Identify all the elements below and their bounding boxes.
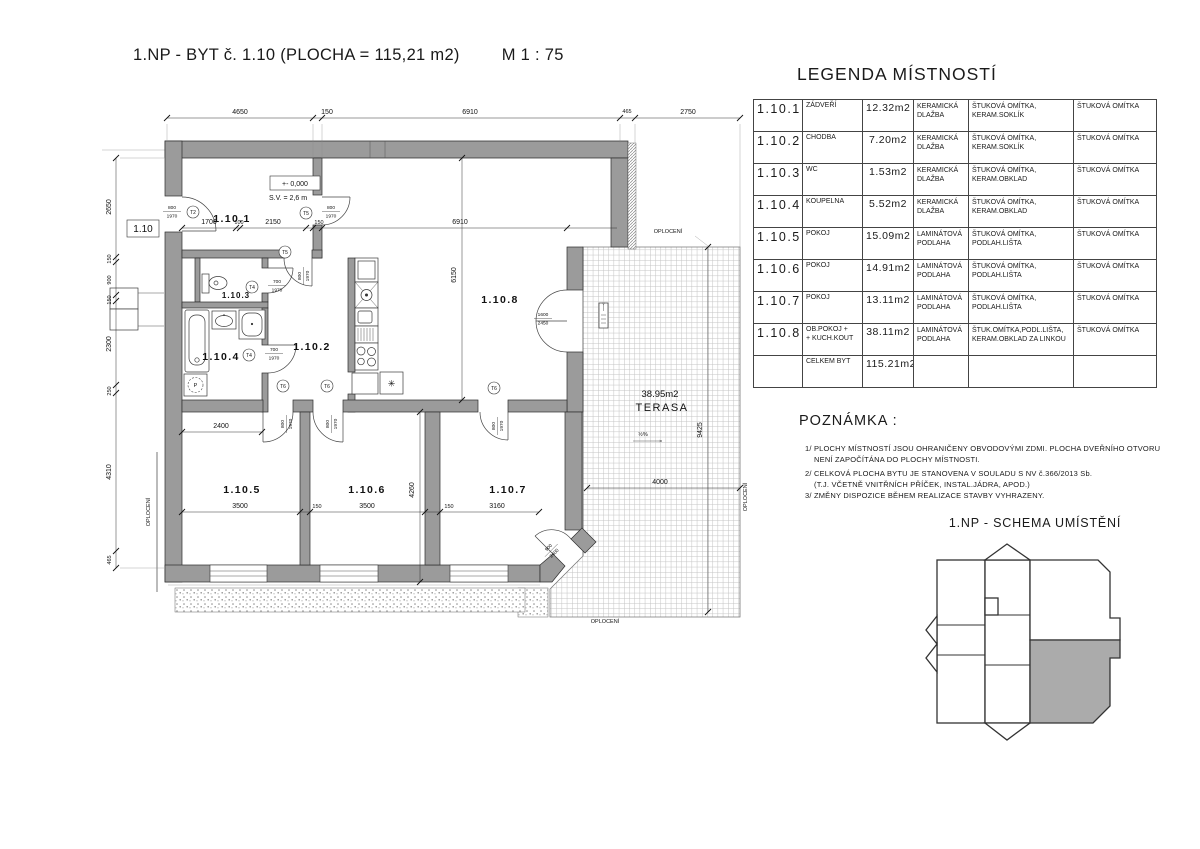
svg-text:2150: 2150 (265, 219, 281, 226)
svg-text:1970: 1970 (499, 420, 505, 431)
svg-text:4000: 4000 (652, 479, 668, 486)
room-label-1-10-1: 1.10.1 (213, 213, 251, 225)
svg-text:800: 800 (325, 420, 331, 428)
table-row: 1.10.3 WC 1.53m2 KERAMICKÁDLAŽBA ŠTUKOVÁ… (754, 164, 1157, 196)
table-row-total: CELKEM BYT 115.21m2 (754, 356, 1157, 388)
shaft-boxes (110, 288, 164, 330)
legend-title: LEGENDA MÍSTNOSTÍ (797, 64, 997, 85)
page-title: 1.NP - BYT č. 1.10 (PLOCHA = 115,21 m2) (133, 46, 460, 65)
note-line: 3/ ZMĚNY DISPOZICE BĚHEM REALIZACE STAVB… (805, 490, 1160, 501)
building-outline (926, 544, 1120, 740)
floor-plan: P ✳ (95, 90, 765, 650)
svg-text:800: 800 (327, 205, 335, 211)
drawing-sheet: 1.NP - BYT č. 1.10 (PLOCHA = 115,21 m2) … (0, 0, 1200, 849)
door-tag-t5: T5 (282, 250, 288, 256)
svg-text:2400: 2400 (213, 423, 229, 430)
terrace-name: TERASA (635, 402, 688, 414)
svg-text:2300: 2300 (106, 336, 113, 352)
ceiling-height: S.V. = 2,6 m (269, 195, 307, 202)
table-row: 1.10.8 OB.POKOJ ++ KUCH.KOUT 38.11m2 LAM… (754, 324, 1157, 356)
boiler: ✳ (380, 372, 403, 394)
table-row: 1.10.2 CHODBA 7.20m2 KERAMICKÁDLAŽBA ŠTU… (754, 132, 1157, 164)
svg-text:6150: 6150 (451, 267, 458, 283)
svg-text:1970: 1970 (326, 214, 337, 220)
highlighted-unit (1030, 640, 1120, 723)
svg-text:800: 800 (297, 272, 303, 280)
fence-label-right: OPLOCENÍ (742, 482, 749, 511)
svg-text:6910: 6910 (462, 109, 478, 116)
svg-text:1970: 1970 (272, 288, 283, 294)
door-tag-t6: T6 (491, 386, 497, 392)
washing-machine: P (184, 374, 207, 396)
table-row: 1.10.5 POKOJ 15.09m2 LAMINÁTOVÁPODLAHA Š… (754, 228, 1157, 260)
fence-label-top: OPLOCENÍ (654, 228, 683, 235)
svg-text:1970: 1970 (167, 214, 178, 220)
table-row: 1.10.1 ZÁDVEŘÍ 12.32m2 KERAMICKÁDLAŽBA Š… (754, 100, 1157, 132)
svg-text:2450: 2450 (538, 321, 549, 327)
table-row: 1.10.6 POKOJ 14.91m2 LAMINÁTOVÁPODLAHA Š… (754, 260, 1157, 292)
schema-title: 1.NP - SCHEMA UMÍSTĚNÍ (920, 516, 1150, 530)
note-line: 1/ PLOCHY MÍSTNOSTÍ JSOU OHRANIČENY OBVO… (805, 443, 1160, 454)
room-label-1-10-6: 1.10.6 (348, 484, 386, 496)
svg-text:465: 465 (107, 555, 113, 564)
svg-text:3500: 3500 (232, 503, 248, 510)
svg-text:150: 150 (314, 220, 323, 226)
level-mark: +- 0,000 (282, 181, 308, 188)
fence-label-bottom: OPLOCENÍ (591, 618, 620, 625)
closet (352, 373, 378, 394)
note-line: (T.J. VČETNĚ VNITŘNÍCH PŘÍČEK, INSTAL.JÁ… (805, 479, 1160, 490)
room-label-1-10-7: 1.10.7 (489, 484, 527, 496)
svg-text:1970: 1970 (333, 418, 339, 429)
svg-text:2650: 2650 (106, 199, 113, 215)
notes-title: POZNÁMKA : (799, 413, 898, 429)
svg-text:150: 150 (107, 254, 113, 263)
room-label-1-10-4: 1.10.4 (202, 351, 240, 363)
location-schema (918, 535, 1150, 750)
svg-text:150: 150 (107, 295, 113, 304)
terrace-level-marker (599, 303, 608, 328)
room-label-1-10-2: 1.10.2 (293, 341, 331, 353)
svg-text:700: 700 (270, 347, 278, 353)
door-tag-t6: T6 (324, 384, 330, 390)
room-label-1-10-5: 1.10.5 (223, 484, 261, 496)
note-line: 2/ CELKOVÁ PLOCHA BYTU JE STANOVENA V SO… (805, 468, 1160, 479)
svg-text:1970: 1970 (269, 356, 280, 362)
notes-block: 1/ PLOCHY MÍSTNOSTÍ JSOU OHRANIČENY OBVO… (805, 443, 1160, 501)
apartment-tag: 1.10 (133, 224, 153, 235)
fence-label-left: OPLOCENÍ (145, 497, 152, 526)
door-tag-t6: T6 (280, 384, 286, 390)
svg-text:150: 150 (444, 504, 453, 510)
washer-label: P (194, 383, 198, 389)
terrace-area: 38.95m2 (642, 389, 679, 400)
svg-text:150: 150 (312, 504, 321, 510)
svg-text:4260: 4260 (409, 482, 416, 498)
sheet-header: 1.NP - BYT č. 1.10 (PLOCHA = 115,21 m2) … (133, 46, 564, 65)
svg-text:465: 465 (622, 109, 631, 115)
svg-text:900: 900 (107, 275, 113, 284)
windows (210, 565, 508, 582)
insulation-strip (628, 143, 636, 249)
svg-text:3160: 3160 (489, 503, 505, 510)
svg-text:9425: 9425 (697, 422, 704, 438)
svg-text:1970: 1970 (288, 418, 294, 429)
svg-text:4650: 4650 (232, 109, 248, 116)
svg-text:4310: 4310 (106, 464, 113, 480)
svg-text:2750: 2750 (680, 109, 696, 116)
washbasin (212, 311, 236, 329)
svg-text:3500: 3500 (359, 503, 375, 510)
table-row: 1.10.4 KOUPELNA 5.52m2 KERAMICKÁDLAŽBA Š… (754, 196, 1157, 228)
door-tag-t2: T2 (190, 210, 196, 216)
door-tag-t4: T4 (246, 353, 252, 359)
legend-table: 1.10.1 ZÁDVEŘÍ 12.32m2 KERAMICKÁDLAŽBA Š… (753, 99, 1157, 388)
terrace-slope: ½% (638, 431, 648, 438)
svg-text:6910: 6910 (452, 219, 468, 226)
svg-text:250: 250 (107, 386, 113, 395)
kitchen-unit (355, 258, 378, 370)
fixtures: P ✳ (184, 258, 608, 396)
svg-text:800: 800 (280, 420, 286, 428)
svg-text:800: 800 (491, 422, 497, 430)
room-label-1-10-3: 1.10.3 (222, 291, 250, 300)
door-tag-t5: T5 (303, 211, 309, 217)
table-row: 1.10.7 POKOJ 13.11m2 LAMINÁTOVÁPODLAHA Š… (754, 292, 1157, 324)
shower (239, 310, 265, 339)
svg-text:1970: 1970 (305, 270, 311, 281)
drawing-scale: M 1 : 75 (502, 46, 564, 65)
gravel-strip (175, 588, 525, 612)
room-label-1-10-8: 1.10.8 (481, 294, 519, 306)
note-line: NENÍ ZAPOČÍTÁNA DO PLOCHY MÍSTNOSTI. (805, 454, 1160, 465)
boiler-symbol: ✳ (388, 379, 396, 389)
svg-text:700: 700 (273, 279, 281, 285)
svg-text:1600: 1600 (538, 312, 549, 318)
svg-text:800: 800 (168, 205, 176, 211)
svg-text:150: 150 (321, 109, 333, 116)
